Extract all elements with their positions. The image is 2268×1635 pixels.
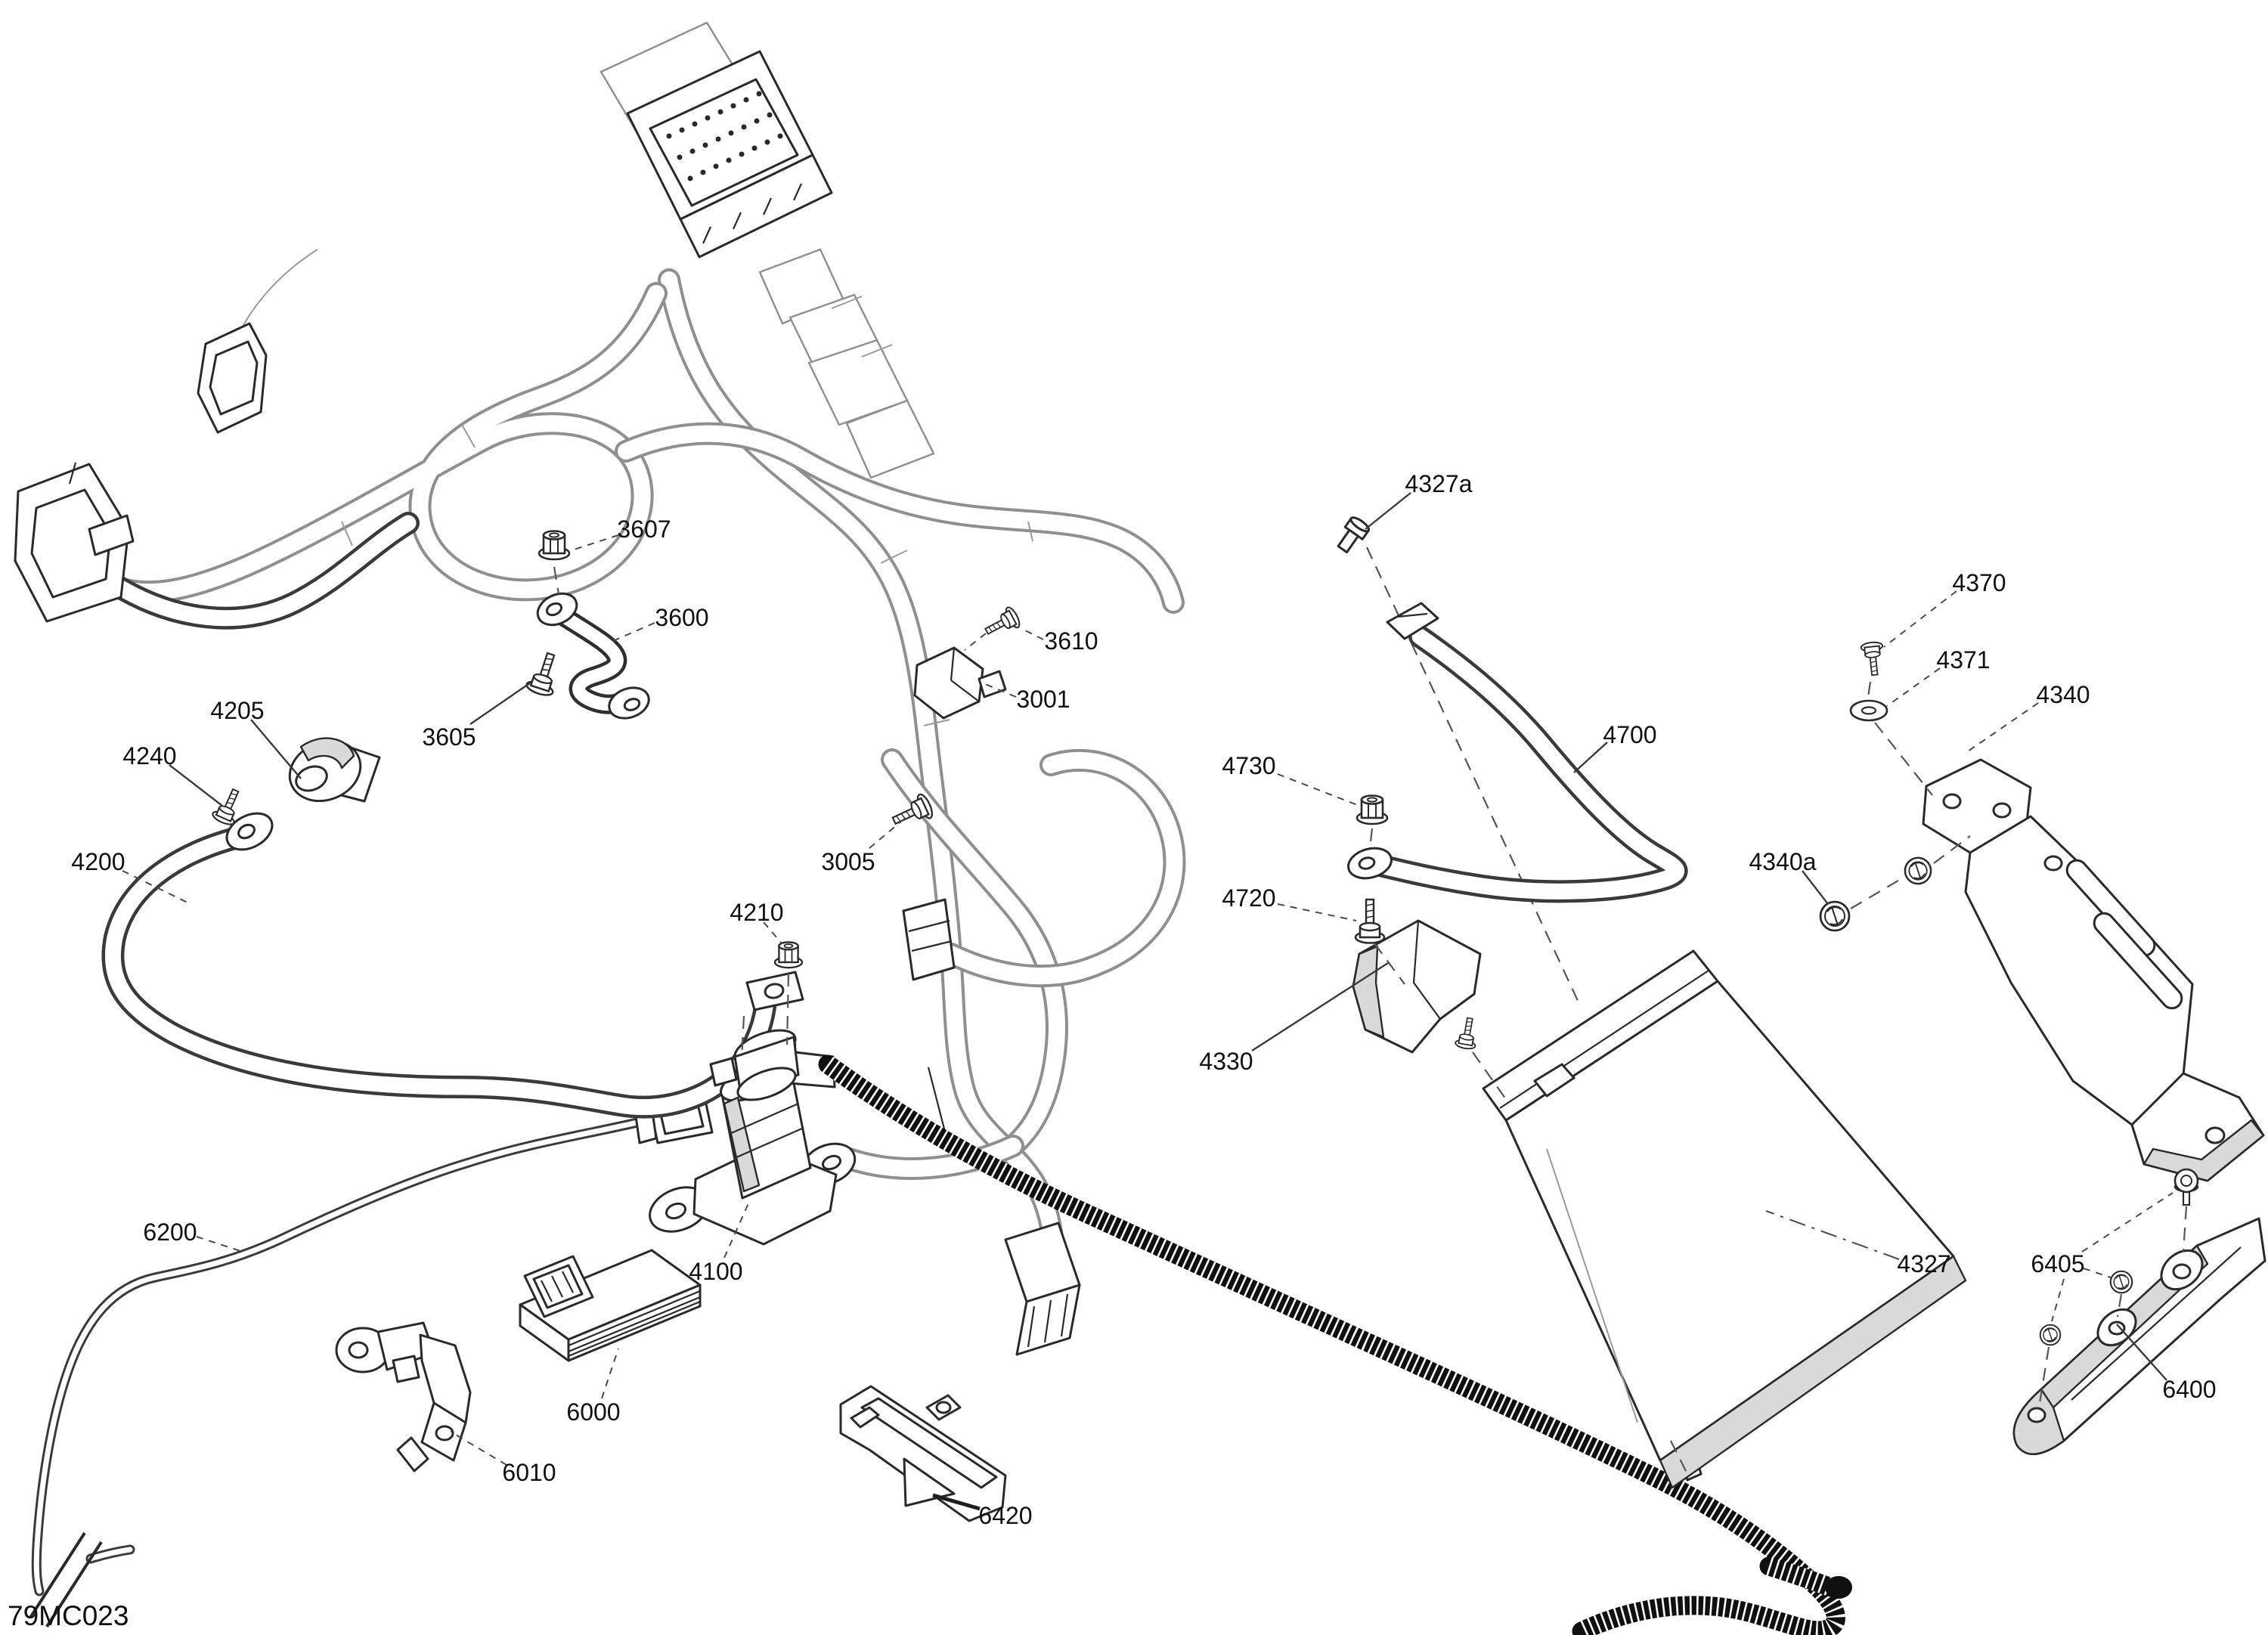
part-label-4100: 4100: [689, 1258, 742, 1285]
leader-line-6010: [451, 1432, 507, 1465]
push-nut-4340a: [1905, 858, 1931, 884]
leader-line-6405: [2082, 1193, 2173, 1252]
leader-line-6200: [197, 1237, 240, 1251]
flag-terminal: [747, 972, 803, 1010]
nut-4210: [775, 942, 802, 968]
part-label-4327: 4327: [1897, 1250, 1950, 1277]
part-label-4330: 4330: [1199, 1048, 1253, 1075]
leader-line-6405: [2052, 1279, 2064, 1321]
part-label-4240: 4240: [122, 742, 176, 770]
lower-connector-b: [1005, 1223, 1080, 1355]
leader-line-4340a: [1802, 871, 1828, 904]
diagram-code: 79MC023: [8, 1600, 129, 1631]
leader-line-4205: [251, 720, 301, 779]
leader-line-3610: [1022, 629, 1043, 639]
bolt-4370: [1861, 641, 1885, 676]
part-label-6010: 6010: [502, 1459, 556, 1486]
bracket-6010: [336, 1323, 470, 1471]
leader-line-4730: [1278, 774, 1359, 806]
bracket-6420: [841, 1386, 1005, 1521]
part-label-6400: 6400: [2162, 1376, 2216, 1403]
leader-line-3605: [470, 683, 531, 724]
battery-4327: [1367, 547, 1966, 1488]
leader-line-4700: [1574, 742, 1607, 773]
part-label-4730: 4730: [1222, 752, 1275, 779]
part-label-3005: 3005: [821, 848, 875, 875]
leader-line-4327a: [1365, 493, 1411, 529]
part-label-3600: 3600: [655, 604, 708, 631]
bolt-4720: [1356, 900, 1384, 943]
sensor-3001: [915, 605, 1022, 718]
module-6000: [520, 1250, 700, 1361]
part-label-6405: 6405: [2031, 1250, 2084, 1277]
bolt-3610: [981, 605, 1022, 641]
part-label-4205: 4205: [210, 697, 264, 724]
part-label-4340a: 4340a: [1749, 848, 1817, 875]
leader-line-4370: [1884, 591, 1957, 647]
cover-bolt: [1455, 1017, 1479, 1050]
part-label-4327a: 4327a: [1405, 470, 1473, 497]
part-label-6000: 6000: [566, 1398, 620, 1426]
part-label-6420: 6420: [978, 1502, 1032, 1529]
callout-layer: 3607360036054205424042003610300130054210…: [71, 470, 2216, 1529]
terminal-cover-4330: [1353, 921, 1509, 1104]
nut-6405: [2040, 1325, 2061, 1345]
leader-line-6000: [602, 1349, 618, 1398]
screw-6405: [2175, 1169, 2198, 1205]
lower-connector-a: [903, 900, 954, 980]
push-nut-4340a: [1820, 902, 1849, 931]
part-label-4720: 4720: [1222, 884, 1275, 912]
bolt-4327a: [1334, 516, 1371, 556]
nut-6405: [2111, 1271, 2133, 1293]
part-label-6200: 6200: [143, 1219, 197, 1246]
part-label-4371: 4371: [1936, 646, 1990, 674]
part-label-4200: 4200: [71, 848, 125, 875]
leader-line-4340: [1966, 703, 2038, 753]
nut-3607: [539, 531, 569, 560]
leader-line-4720: [1278, 904, 1356, 921]
bolt-3605: [525, 650, 564, 698]
part-label-3001: 3001: [1016, 686, 1070, 713]
cable-4200: [113, 731, 765, 1107]
part-label-3610: 3610: [1044, 627, 1098, 655]
small-connector-top: [198, 249, 318, 432]
washer-4371: [1851, 701, 1887, 720]
leader-line-3005: [869, 816, 907, 848]
jumper-strap-3600: [525, 531, 653, 724]
leader-line-4371: [1887, 668, 1940, 706]
part-label-4370: 4370: [1952, 569, 2006, 596]
part-label-4700: 4700: [1603, 721, 1656, 748]
part-label-3607: 3607: [617, 516, 671, 543]
part-label-3605: 3605: [422, 723, 476, 751]
main-connector: [601, 23, 832, 257]
leader-line-3600: [609, 623, 655, 643]
leader-line-6405: [2084, 1268, 2111, 1277]
left-connector: [15, 463, 408, 621]
support-rail-6400: [2014, 1169, 2265, 1454]
support-bracket-4340: [1820, 641, 2263, 1181]
leader-line-4240: [169, 765, 222, 806]
part-label-4210: 4210: [730, 899, 783, 926]
nut-4730: [1357, 796, 1387, 825]
parts-diagram: 3607360036054205424042003610300130054210…: [0, 0, 2268, 1635]
part-label-4340: 4340: [2036, 681, 2090, 708]
